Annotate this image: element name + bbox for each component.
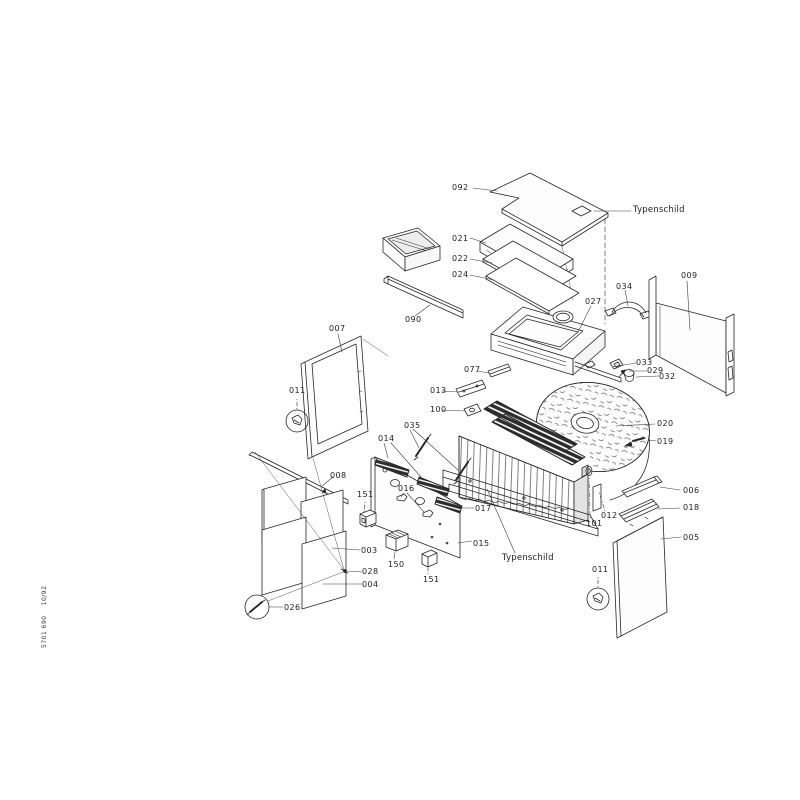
- part-label-026: 026: [284, 603, 300, 612]
- part-label-014: 014: [378, 434, 394, 443]
- part-label-006: 006: [683, 486, 699, 495]
- junction-box-150: [386, 530, 408, 551]
- part-label-020: 020: [657, 419, 673, 428]
- plate-100: [464, 404, 481, 416]
- front-panel-005: [613, 517, 667, 638]
- part-label-077: 077: [464, 365, 480, 374]
- part-label-016: 016: [398, 484, 414, 493]
- side-frame-007: [301, 336, 388, 459]
- part-label-092: 092: [452, 183, 468, 192]
- exploded-parts-page: 092 Typenschild 021 022 024 034 009 027 …: [0, 0, 800, 800]
- part-label-022: 022: [452, 254, 468, 263]
- part-label-003: 003: [361, 546, 377, 555]
- part-label-032: 032: [659, 372, 675, 381]
- part-label-028: 028: [362, 567, 378, 576]
- part-label-018: 018: [683, 503, 699, 512]
- document-edge-text: 5701 69010/92: [41, 586, 48, 648]
- part-label-009: 009: [681, 271, 697, 280]
- part-label-015: 015: [473, 539, 489, 548]
- part-label-011-bottom: 011: [592, 565, 608, 574]
- typenschild-label-top: Typenschild: [633, 205, 685, 215]
- document-revision: 10/92: [41, 586, 48, 606]
- hinge-detail-011-bottom: [587, 577, 609, 610]
- exploded-diagram: [0, 0, 800, 800]
- bracket-013: [456, 380, 486, 397]
- part-label-151-right: 151: [423, 575, 439, 584]
- part-label-024: 024: [452, 270, 468, 279]
- control-unit: [383, 228, 440, 271]
- part-label-101: 101: [586, 519, 602, 528]
- part-label-090: 090: [405, 315, 421, 324]
- part-label-150: 150: [388, 560, 404, 569]
- typenschild-label-bottom: Typenschild: [502, 553, 554, 563]
- part-label-034: 034: [616, 282, 632, 291]
- bracket-077: [488, 364, 511, 377]
- part-label-011-left: 011: [289, 386, 305, 395]
- part-label-007: 007: [329, 324, 345, 333]
- rail-006: [622, 476, 662, 497]
- top-box-027: [491, 307, 621, 382]
- part-label-013: 013: [430, 386, 446, 395]
- sensor-box-151-right: [422, 550, 437, 574]
- sensor-box-151-left: [360, 502, 376, 527]
- document-number: 5701 690: [41, 615, 48, 648]
- part-label-100: 100: [430, 405, 446, 414]
- part-label-017: 017: [475, 504, 491, 513]
- part-label-027: 027: [585, 297, 601, 306]
- part-label-035: 035: [404, 421, 420, 430]
- part-label-151-left: 151: [357, 490, 373, 499]
- part-label-021: 021: [452, 234, 468, 243]
- fitting-033: [610, 359, 623, 369]
- part-label-004: 004: [362, 580, 378, 589]
- part-label-008: 008: [330, 471, 346, 480]
- part-label-012: 012: [601, 511, 617, 520]
- trim-strip-090: [384, 276, 463, 318]
- part-label-019: 019: [657, 437, 673, 446]
- part-label-005: 005: [683, 533, 699, 542]
